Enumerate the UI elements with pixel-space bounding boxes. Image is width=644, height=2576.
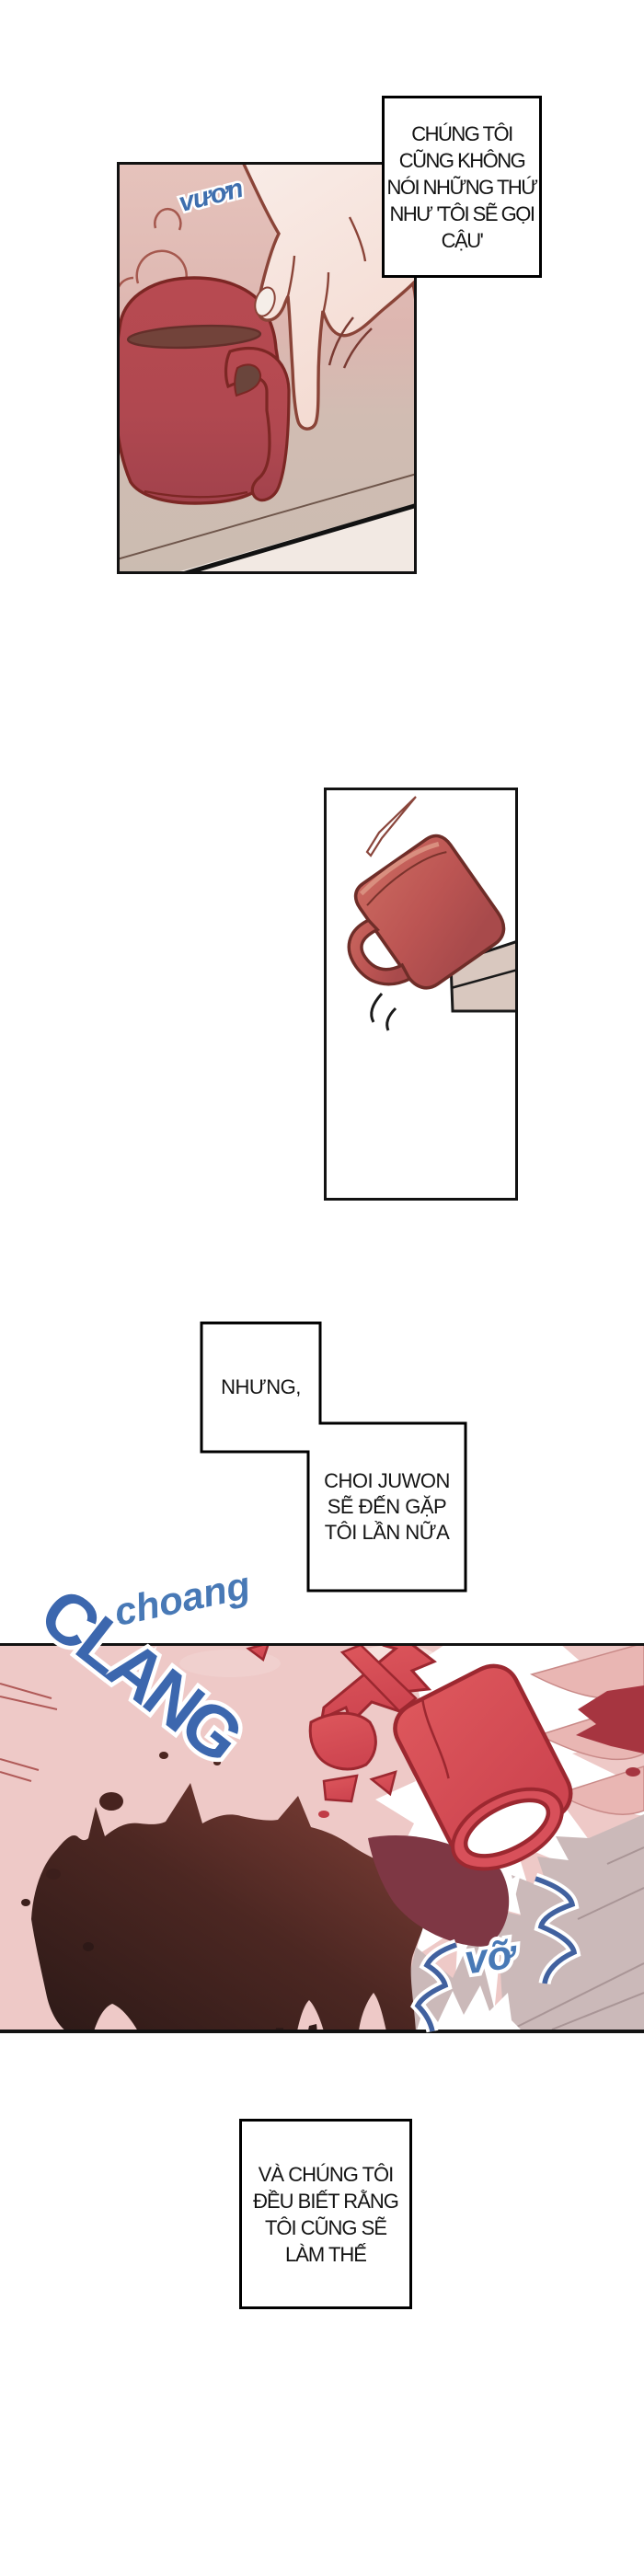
svg-text:vỡ: vỡ	[462, 1931, 522, 1984]
svg-text:vươn: vươn	[176, 174, 246, 218]
